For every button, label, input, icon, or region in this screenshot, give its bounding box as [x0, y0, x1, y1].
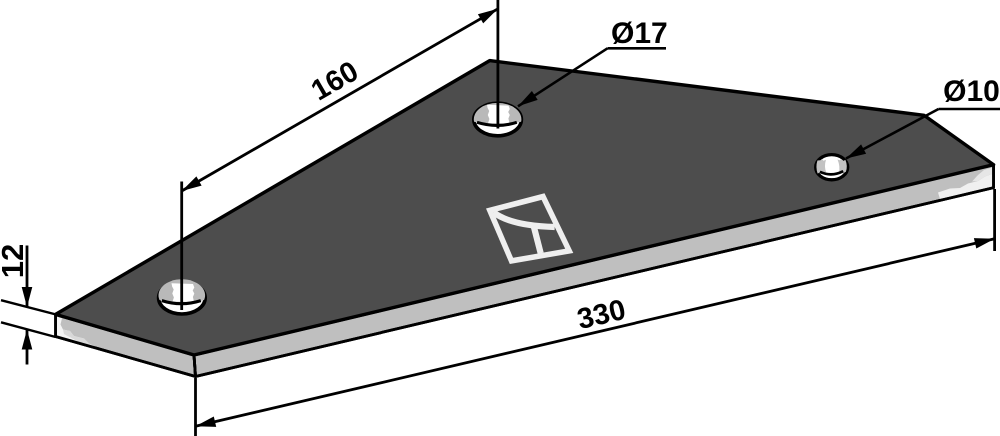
svg-text:Ø17: Ø17	[611, 17, 668, 50]
svg-text:12: 12	[0, 244, 30, 278]
svg-text:Ø10: Ø10	[943, 75, 1000, 108]
